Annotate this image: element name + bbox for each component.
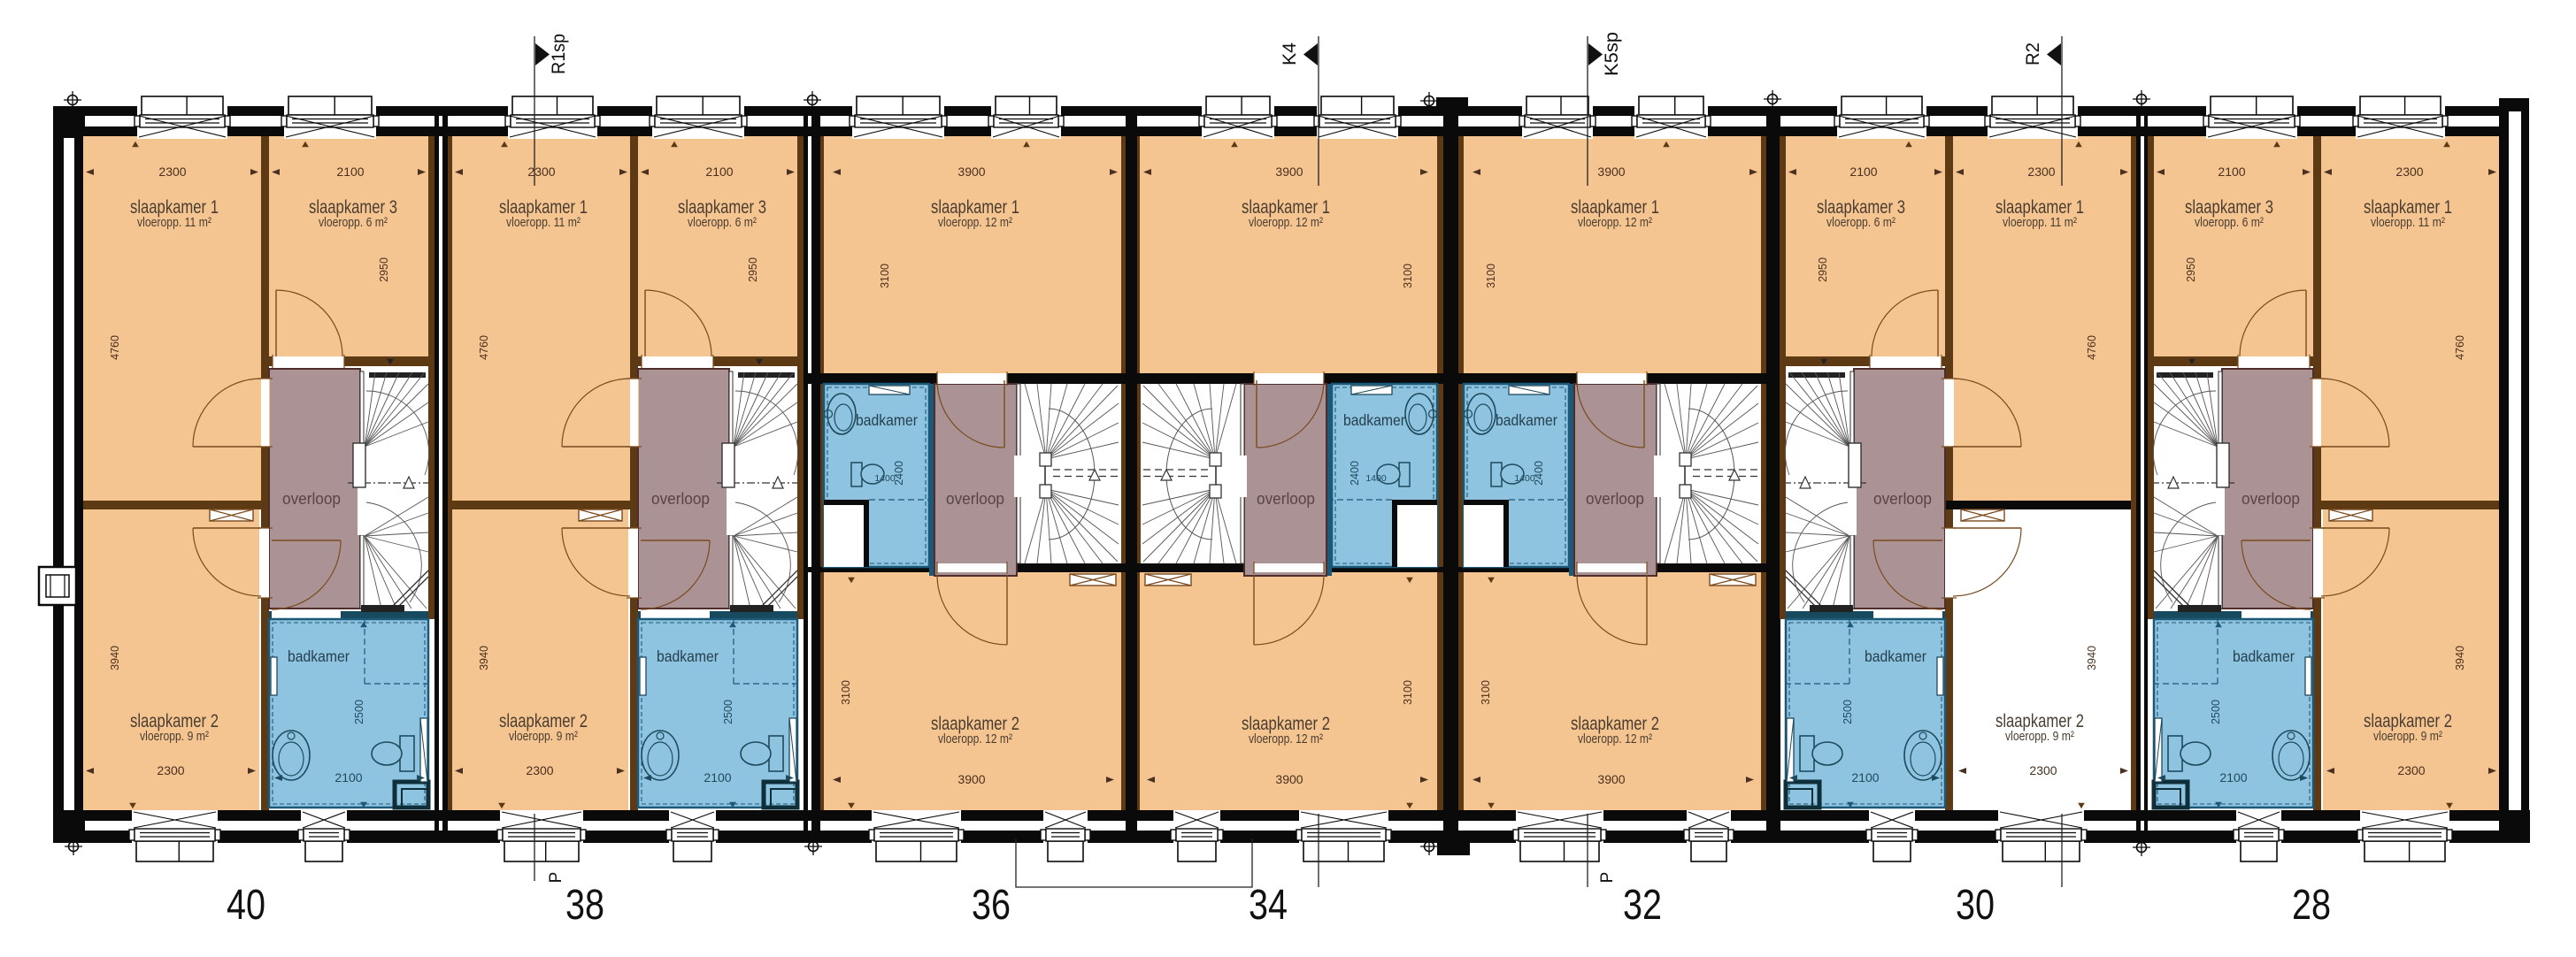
- svg-text:2100: 2100: [334, 770, 362, 785]
- svg-text:2100: 2100: [336, 165, 364, 179]
- svg-text:P: P: [547, 872, 565, 884]
- svg-text:36: 36: [972, 882, 1011, 929]
- svg-text:1400: 1400: [1365, 473, 1387, 484]
- svg-text:2100: 2100: [2219, 770, 2247, 785]
- svg-text:2300: 2300: [527, 165, 555, 179]
- svg-text:2100: 2100: [704, 770, 731, 785]
- svg-text:2950: 2950: [2185, 257, 2197, 282]
- svg-text:badkamer: badkamer: [1865, 647, 1926, 665]
- svg-text:2950: 2950: [1817, 257, 1829, 282]
- svg-text:overloop: overloop: [1873, 489, 1932, 508]
- svg-text:34: 34: [1249, 882, 1288, 929]
- svg-text:vloeropp. 12 m²: vloeropp. 12 m²: [938, 215, 1012, 230]
- svg-text:30: 30: [1956, 882, 1995, 929]
- svg-text:overloop: overloop: [1257, 489, 1315, 508]
- svg-text:2300: 2300: [158, 165, 186, 179]
- svg-text:badkamer: badkamer: [657, 647, 719, 665]
- svg-text:2950: 2950: [378, 257, 390, 282]
- svg-text:2300: 2300: [2029, 763, 2057, 777]
- svg-text:badkamer: badkamer: [2233, 647, 2295, 665]
- svg-text:vloeropp. 12 m²: vloeropp. 12 m²: [1249, 731, 1323, 746]
- svg-text:3100: 3100: [1402, 264, 1414, 288]
- svg-text:3900: 3900: [957, 772, 985, 786]
- svg-text:2100: 2100: [1849, 165, 1877, 179]
- svg-text:2400: 2400: [1533, 461, 1545, 486]
- svg-text:2500: 2500: [722, 700, 734, 724]
- svg-text:2300: 2300: [526, 763, 553, 777]
- svg-text:4760: 4760: [2454, 335, 2466, 360]
- svg-text:vloeropp. 9 m²: vloeropp. 9 m²: [140, 729, 209, 744]
- svg-text:4760: 4760: [2086, 335, 2098, 360]
- svg-text:vloeropp. 9 m²: vloeropp. 9 m²: [2373, 729, 2442, 744]
- svg-text:badkamer: badkamer: [1496, 411, 1557, 429]
- svg-text:vloeropp. 6 m²: vloeropp. 6 m²: [688, 215, 757, 230]
- svg-text:3900: 3900: [1597, 772, 1625, 786]
- svg-text:4760: 4760: [478, 335, 490, 360]
- svg-text:2400: 2400: [893, 461, 905, 486]
- svg-text:vloeropp. 9 m²: vloeropp. 9 m²: [2005, 729, 2074, 744]
- svg-text:2950: 2950: [747, 257, 759, 282]
- svg-text:4760: 4760: [109, 335, 121, 360]
- svg-text:R1sp: R1sp: [549, 34, 569, 74]
- svg-text:P: P: [1598, 872, 1617, 884]
- svg-text:2100: 2100: [705, 165, 733, 179]
- svg-text:3900: 3900: [1275, 165, 1303, 179]
- svg-text:28: 28: [2292, 882, 2331, 929]
- svg-text:3100: 3100: [1480, 680, 1492, 705]
- svg-text:2300: 2300: [2397, 763, 2425, 777]
- svg-text:3900: 3900: [957, 165, 985, 179]
- svg-text:vloeropp. 6 m²: vloeropp. 6 m²: [319, 215, 388, 230]
- svg-text:badkamer: badkamer: [856, 411, 918, 429]
- svg-text:K4: K4: [1280, 42, 1300, 65]
- svg-text:vloeropp. 11 m²: vloeropp. 11 m²: [2371, 215, 2445, 230]
- svg-text:vloeropp. 12 m²: vloeropp. 12 m²: [1249, 215, 1323, 230]
- svg-text:3940: 3940: [478, 646, 490, 670]
- svg-text:2100: 2100: [1851, 770, 1879, 785]
- svg-text:overloop: overloop: [282, 489, 341, 508]
- svg-text:38: 38: [565, 882, 604, 929]
- svg-text:32: 32: [1623, 882, 1662, 929]
- svg-text:2500: 2500: [353, 700, 365, 724]
- svg-text:overloop: overloop: [651, 489, 710, 508]
- svg-text:3100: 3100: [1402, 680, 1414, 705]
- svg-text:2400: 2400: [1349, 461, 1361, 486]
- svg-text:40: 40: [227, 882, 265, 929]
- svg-text:3940: 3940: [2086, 646, 2098, 670]
- svg-text:2300: 2300: [2027, 165, 2055, 179]
- svg-text:vloeropp. 11 m²: vloeropp. 11 m²: [2003, 215, 2077, 230]
- svg-text:R2: R2: [2023, 42, 2043, 65]
- svg-text:2500: 2500: [1842, 700, 1854, 724]
- svg-text:3940: 3940: [2454, 646, 2466, 670]
- svg-text:vloeropp. 9 m²: vloeropp. 9 m²: [509, 729, 578, 744]
- svg-text:vloeropp. 6 m²: vloeropp. 6 m²: [2195, 215, 2264, 230]
- svg-text:2500: 2500: [2210, 700, 2222, 724]
- svg-text:3940: 3940: [109, 646, 121, 670]
- svg-text:2300: 2300: [2395, 165, 2423, 179]
- svg-text:vloeropp. 11 m²: vloeropp. 11 m²: [506, 215, 581, 230]
- svg-text:vloeropp. 11 m²: vloeropp. 11 m²: [137, 215, 211, 230]
- svg-text:badkamer: badkamer: [1343, 411, 1405, 429]
- svg-text:overloop: overloop: [1586, 489, 1644, 508]
- svg-text:3100: 3100: [840, 680, 852, 705]
- svg-text:vloeropp. 6 m²: vloeropp. 6 m²: [1826, 215, 1895, 230]
- svg-text:overloop: overloop: [2242, 489, 2300, 508]
- svg-text:overloop: overloop: [946, 489, 1004, 508]
- svg-text:badkamer: badkamer: [288, 647, 350, 665]
- svg-text:3900: 3900: [1597, 165, 1625, 179]
- svg-text:K5sp: K5sp: [1602, 32, 1622, 76]
- svg-text:2100: 2100: [2218, 165, 2245, 179]
- svg-text:vloeropp. 12 m²: vloeropp. 12 m²: [1578, 215, 1652, 230]
- svg-text:3900: 3900: [1275, 772, 1303, 786]
- svg-text:2300: 2300: [157, 763, 184, 777]
- svg-text:3100: 3100: [879, 264, 891, 288]
- svg-text:3100: 3100: [1485, 264, 1497, 288]
- svg-text:vloeropp. 12 m²: vloeropp. 12 m²: [938, 731, 1012, 746]
- svg-text:vloeropp. 12 m²: vloeropp. 12 m²: [1578, 731, 1652, 746]
